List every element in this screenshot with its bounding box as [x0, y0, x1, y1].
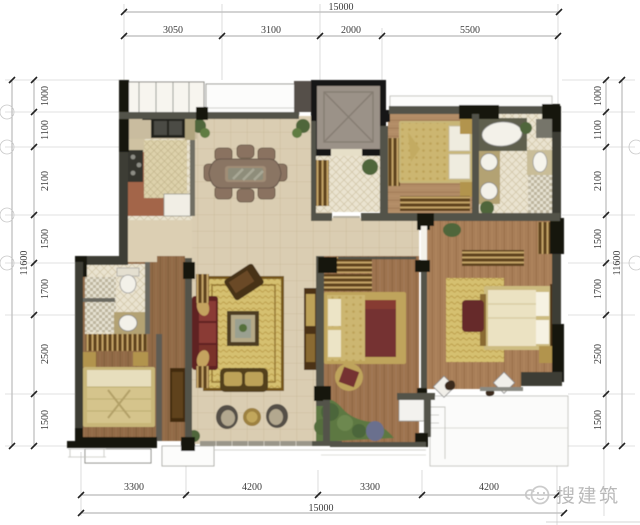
svg-text:1700: 1700 — [40, 279, 51, 299]
svg-text:1700: 1700 — [593, 279, 604, 299]
svg-text:15000: 15000 — [329, 2, 354, 13]
svg-text:4200: 4200 — [242, 482, 262, 493]
svg-text:5500: 5500 — [460, 25, 480, 36]
svg-text:1000: 1000 — [593, 86, 604, 106]
svg-text:2100: 2100 — [593, 171, 604, 191]
svg-text:1500: 1500 — [40, 410, 51, 430]
svg-text:2100: 2100 — [40, 171, 51, 191]
svg-text:搜建筑: 搜建筑 — [556, 485, 621, 507]
svg-text:3100: 3100 — [261, 25, 281, 36]
svg-text:1500: 1500 — [40, 229, 51, 249]
svg-text:3300: 3300 — [124, 482, 144, 493]
svg-text:1100: 1100 — [40, 120, 51, 140]
svg-text:11600: 11600 — [612, 251, 623, 276]
svg-text:1500: 1500 — [593, 229, 604, 249]
svg-text:11600: 11600 — [19, 251, 30, 276]
svg-text:1500: 1500 — [593, 410, 604, 430]
svg-text:2000: 2000 — [341, 25, 361, 36]
svg-text:3050: 3050 — [163, 25, 183, 36]
svg-text:15000: 15000 — [309, 503, 334, 514]
svg-text:1100: 1100 — [593, 120, 604, 140]
svg-text:2500: 2500 — [40, 344, 51, 364]
svg-text:4200: 4200 — [479, 482, 499, 493]
svg-text:1000: 1000 — [40, 86, 51, 106]
svg-text:3300: 3300 — [360, 482, 380, 493]
svg-text:2500: 2500 — [593, 344, 604, 364]
